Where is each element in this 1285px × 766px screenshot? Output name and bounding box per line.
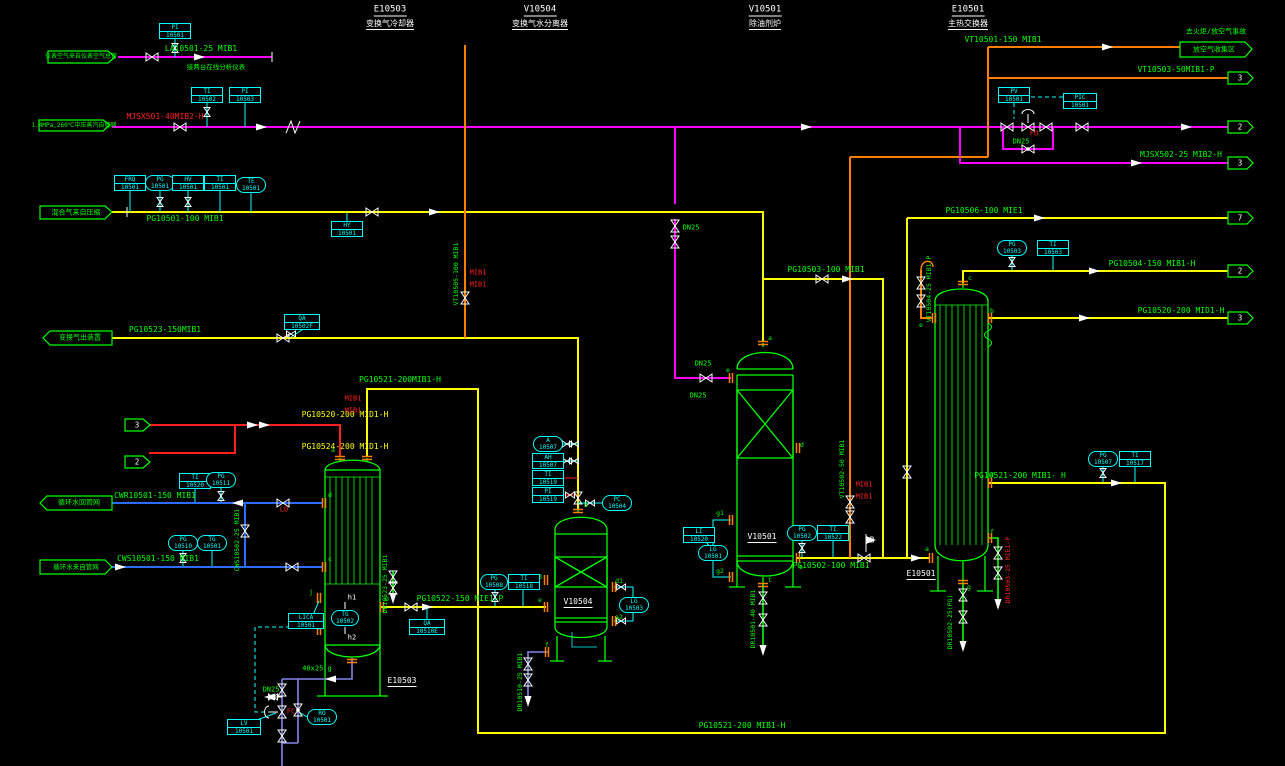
line-note: 接两台在线分析仪表 — [187, 64, 246, 71]
instrument-tag: TG — [198, 536, 226, 543]
instrument-bubble-ro-10501: RO10501 — [307, 709, 337, 725]
offpage-2b: 2 — [1238, 267, 1243, 275]
spec-break: MIB1 — [856, 482, 873, 489]
size-label: DN25 — [263, 687, 280, 694]
instrument-bubble-tg-10501: TG10501 — [197, 535, 227, 551]
line-label: PG10524-200 MID1-H — [302, 443, 389, 451]
line-label: PG10521-200 MIB1-H — [699, 722, 786, 730]
instrument-number: 10502 — [788, 533, 816, 540]
offpage-2-left: 2 — [135, 458, 140, 466]
instrument-number: 10507 — [1089, 459, 1117, 466]
instrument-number: 10511 — [207, 480, 235, 487]
nozzle: a — [768, 335, 772, 342]
instrument-bubble-tg-10502: TG10502 — [331, 610, 359, 626]
line-label: CWS10501-150 MIB1 — [117, 555, 199, 563]
instrument-number: 10503 — [230, 96, 260, 103]
tap-label: h1 — [348, 595, 356, 602]
vessel-v10501 — [729, 343, 801, 587]
spec-break: MIB1 — [345, 408, 362, 415]
line-label: MJSX501-40MIB2-H — [126, 113, 203, 121]
instrument-tag: TI — [1038, 241, 1068, 249]
equip-label-v10504: V10504 — [564, 598, 593, 608]
offpage-2a: 2 — [1238, 123, 1243, 131]
instrument-number: 10522 — [818, 534, 848, 541]
vessel-v10504 — [550, 508, 612, 661]
line-label: LA10501-25 MIB1 — [165, 45, 237, 53]
flag-shift-gas-out: 变换气出装置 — [59, 335, 101, 342]
instrument-signal-dashed — [255, 97, 1063, 712]
instrument-bubble-pg-10511: PG10511 — [206, 472, 236, 488]
instrument-tag: PIC — [1064, 94, 1096, 102]
instrument-bubble-pic-10501: PIC10501 — [1063, 93, 1097, 109]
instrument-bubble-pi-10519: PI10519 — [532, 487, 564, 503]
flag-cw-return: 循环水回管网 — [58, 500, 100, 507]
instrument-number: 10501 — [289, 622, 323, 629]
instrument-tag: PG — [169, 536, 197, 543]
instrument-tag: LI — [684, 528, 714, 536]
header-e10501-sub: 主热交换器 — [948, 20, 988, 30]
line-label: DR10510-25 MIB1 — [517, 653, 524, 712]
instrument-tag: TI — [192, 88, 222, 96]
line-label: PG10521-200MIB1-H — [359, 376, 441, 384]
flag-instrument-air: 仪表空气来自仪表空气总管 — [45, 54, 117, 60]
nozzle: t — [768, 577, 772, 584]
tap-label: h2 — [348, 635, 356, 642]
line-label: DR10523-25 MIB1 — [382, 555, 389, 614]
instrument-taps — [130, 38, 1135, 721]
nozzle: e — [726, 367, 730, 374]
instrument-tag: TI — [1120, 452, 1150, 460]
offpage-3-left: 3 — [135, 421, 140, 429]
instrument-number: 10502 — [192, 96, 222, 103]
header-v10504-sub: 变换气水分离器 — [512, 20, 568, 30]
line-label: PG10506-100 MIE1 — [945, 207, 1022, 215]
instrument-bubble-ti-10522: TI10522 — [817, 525, 849, 541]
nozzle: f — [545, 642, 549, 649]
line-label: PG10522-150 MIE1-P — [417, 595, 504, 603]
line-label: PG10502-100 MIB1 — [792, 562, 869, 570]
spec-break: MIB1 — [345, 396, 362, 403]
instrument-number: 10504 — [603, 503, 631, 510]
instrument-bubble-ti-10519: TI10519 — [532, 470, 564, 486]
nozzle: d — [800, 442, 804, 449]
line-label: VT10503-50MIB1-P — [1137, 66, 1214, 74]
nozzle: b — [584, 502, 588, 509]
instrument-bubble-pc-10504: PC10504 — [602, 495, 632, 511]
offpage-7: 7 — [1238, 214, 1243, 222]
instrument-bubble-a-10507: A10507 — [533, 436, 563, 452]
instrument-tag: QA — [285, 315, 319, 323]
note-flare: 去火炬/放空气事故 — [1186, 29, 1246, 36]
instrument-tag: PI — [230, 88, 260, 96]
nozzle: a — [925, 546, 929, 553]
instrument-bubble-pg-10510: PG10510 — [168, 535, 198, 551]
nozzle: j — [309, 589, 313, 596]
nozzle: d1 — [615, 578, 623, 585]
instrument-tag: LG — [620, 598, 648, 605]
instrument-tag: HY — [332, 222, 362, 230]
size-label: DN25 — [695, 361, 712, 368]
instrument-number: 10501 — [1064, 102, 1096, 109]
nozzle: a — [331, 447, 335, 454]
instrument-tag: FRQ — [115, 176, 145, 184]
vessel-e10501 — [930, 283, 993, 591]
instrument-bubble-hv-10501: HV10501 — [172, 175, 204, 191]
line-label: CWS10502-25 MIB1 — [234, 509, 241, 572]
header-e10503-sub: 变换气冷却器 — [366, 20, 414, 30]
nozzle: e — [538, 597, 542, 604]
instrument-number: 10507 — [533, 462, 563, 469]
line-label: PG10520-200 MID1-H — [1138, 307, 1225, 315]
instrument-number: 10501 — [228, 728, 260, 735]
instrument-bubble-ti-10517: TI10517 — [1119, 451, 1151, 467]
instrument-tag: A — [534, 437, 562, 444]
line-label: VT10501-150 MIB1 — [964, 36, 1041, 44]
instrument-number: 10501 — [205, 184, 235, 191]
line-label: PG10523-150MIB1 — [129, 326, 201, 334]
instrument-number: 10517 — [1120, 460, 1150, 467]
instrument-number: 10508 — [481, 582, 507, 589]
instrument-number: 10501 — [237, 185, 265, 192]
offpage-3c: 3 — [1238, 314, 1243, 322]
instrument-bubble-qa-10502f: QA10502F — [284, 314, 320, 330]
instrument-number: 10501 — [115, 184, 145, 191]
pid-drawing-canvas: E10503变换气冷却器V10504变换气水分离器V10501除油剂炉E1050… — [0, 0, 1285, 766]
instrument-tag: PI — [533, 488, 563, 496]
nozzle: b — [799, 564, 803, 571]
instrument-number: 10501 — [160, 32, 190, 39]
instrument-number: 10510 — [169, 543, 197, 550]
instrument-number: 10519 — [533, 479, 563, 486]
instrument-bubble-li-10520: LI10520 — [683, 527, 715, 543]
instrument-tag: QA — [410, 620, 444, 628]
offpage-3b: 3 — [1238, 159, 1243, 167]
instrument-bubble-pi-10503: PI10503 — [229, 87, 261, 103]
header-v10501: V10501 — [749, 6, 782, 17]
nozzle: g — [967, 584, 971, 591]
instrument-number: 10503 — [998, 248, 1026, 255]
line-label: CWR10501-150 MIB1 — [114, 492, 196, 500]
instrument-tag: PI — [160, 24, 190, 32]
nozzle: d — [328, 492, 332, 499]
flag-vent-header: 放空气收集区 — [1193, 47, 1235, 54]
equip-label-e10501: E10501 — [907, 570, 936, 580]
instrument-tag: HV — [173, 176, 203, 184]
instrument-bubble-lica-10501: LICA10501 — [288, 613, 324, 629]
line-label: MJSX502-25 MIB2-H — [1140, 151, 1222, 159]
header-v10504: V10504 — [524, 6, 557, 17]
spec-break: MIB1 — [470, 282, 487, 289]
instrument-bubble-pg-10503: PG10503 — [997, 240, 1027, 256]
nozzle: e — [919, 322, 923, 329]
instrument-number: 10502F — [285, 323, 319, 330]
header-e10503: E10503 — [374, 6, 407, 17]
valve-action: LO — [280, 507, 288, 514]
instrument-tag: RO — [308, 710, 336, 717]
line-label: VT10505-100 MIB1 — [453, 243, 460, 306]
size-label: DN25 — [683, 225, 700, 232]
instrument-tag: PG — [207, 473, 235, 480]
equip-label-e10503: E10503 — [388, 677, 417, 687]
spec-break: MIB1 — [470, 270, 487, 277]
line-label: PG10501-100 MIB1 — [146, 215, 223, 223]
line-label: DR10503-25 MIE1-P — [1005, 537, 1012, 604]
instrument-tag: LG — [699, 546, 727, 553]
instrument-tag: TI — [509, 575, 539, 583]
flag-mixed-gas: 混合气来自压缩 — [52, 210, 101, 217]
line-label: PG10521-200 MIB1- H — [974, 472, 1066, 480]
instrument-number: 10501 — [173, 184, 203, 191]
instrument-bubble-lv-10501: LV10501 — [227, 719, 261, 735]
line-label: DR10502-25(PG) — [947, 595, 954, 650]
instrument-tag: TG — [332, 611, 358, 618]
equip-label-v10501: V10501 — [748, 533, 777, 543]
instrument-number: 10507 — [534, 444, 562, 451]
instrument-bubble-pv-10501: PV10501 — [998, 87, 1030, 103]
instrument-bubble-pg-10507: PG10507 — [1088, 451, 1118, 467]
instrument-number: 10518 — [509, 583, 539, 590]
nozzle: f — [990, 529, 994, 536]
valves — [146, 44, 1106, 743]
instrument-tag: LICA — [289, 614, 323, 622]
nozzle: a2 — [615, 614, 623, 621]
instrument-bubble-ti-10518: TI10518 — [508, 574, 540, 590]
instrument-number: 10501 — [198, 543, 226, 550]
spec-break: MIB1 — [856, 494, 873, 501]
instrument-tag: PG — [146, 176, 174, 183]
size-label: DN25 — [690, 393, 707, 400]
instrument-tag: PV — [999, 88, 1029, 96]
instrument-number: 10501 — [308, 717, 336, 724]
line-label: PG10503-100 MIB1 — [787, 266, 864, 274]
line-label: DR10501-40 MIB1 — [750, 590, 757, 649]
instrument-bubble-pg-10501: PG10501 — [145, 175, 175, 191]
instrument-bubble-ah-10507: AH10507 — [532, 453, 564, 469]
instrument-tag: TI — [205, 176, 235, 184]
instrument-number: 10503 — [620, 605, 648, 612]
line-label: VT10504-25 MIB1-P — [926, 256, 933, 323]
nozzle: D — [385, 596, 389, 603]
instrument-number: 10510E — [410, 628, 444, 635]
flow-arrows — [115, 44, 1192, 708]
valve-action: FO — [1030, 131, 1038, 138]
instrument-bubble-te-10501: TE10501 — [236, 177, 266, 193]
instrument-tag: PG — [998, 241, 1026, 248]
instrument-tag: TE — [237, 178, 265, 185]
instrument-tag: PC — [603, 496, 631, 503]
tie-point-b: B — [870, 536, 875, 544]
nozzle: g2 — [716, 568, 724, 575]
instrument-bubble-pg-10508: PG10508 — [480, 574, 508, 590]
instrument-bubble-ti-10501: TI10501 — [204, 175, 236, 191]
instrument-tag: AH — [533, 454, 563, 462]
instrument-bubble-hy-10501: HY10501 — [331, 221, 363, 237]
instrument-tag: LV — [228, 720, 260, 728]
instrument-number: 10519 — [533, 496, 563, 503]
instrument-bubble-lg-10503: LG10503 — [619, 597, 649, 613]
line-label: PG10504-150 MIB1-H — [1109, 260, 1196, 268]
instrument-number: 10520 — [684, 536, 714, 543]
instrument-bubble-frq-10501: FRQ10501 — [114, 175, 146, 191]
nozzle: d — [990, 472, 994, 479]
size-label: 40x25 g — [302, 666, 332, 673]
nozzle: b — [990, 308, 994, 315]
line-label: VT10502-50 MIB1 — [839, 440, 846, 499]
instrument-tag: PG — [1089, 452, 1117, 459]
header-e10501: E10501 — [952, 6, 985, 17]
instrument-bubble-qa-10510e: QA10510E — [409, 619, 445, 635]
instrument-bubble-ti-10503: TI10503 — [1037, 240, 1069, 256]
offpage-3a: 3 — [1238, 74, 1243, 82]
flag-mp-steam: 1.4MPa,260℃中压蒸汽自管网 — [32, 123, 117, 129]
instrument-number: 10501 — [999, 96, 1029, 103]
instrument-bubble-ti-10502: TI10502 — [191, 87, 223, 103]
size-label: DN25 — [1013, 139, 1030, 146]
nozzle: c — [968, 275, 972, 282]
instrument-tag: PG — [788, 526, 816, 533]
instrument-number: 10501 — [332, 230, 362, 237]
instrument-tag: TI — [818, 526, 848, 534]
instrument-tag: PG — [481, 575, 507, 582]
instrument-bubble-pi-10501: PI10501 — [159, 23, 191, 39]
instrument-number: 10501 — [699, 553, 727, 560]
valve-action: FC — [287, 709, 295, 716]
instrument-tag: TI — [533, 471, 563, 479]
instrument-bubble-lg-10501: LG10501 — [698, 545, 728, 561]
nozzle: c — [328, 556, 332, 563]
instrument-number: 10502 — [332, 618, 358, 625]
flag-cw-supply: 循环水来自管网 — [53, 564, 99, 571]
instrument-bubble-pg-10502: PG10502 — [787, 525, 817, 541]
instrument-number: 10501 — [146, 183, 174, 190]
nozzle: g1 — [716, 510, 724, 517]
header-v10501-sub: 除油剂炉 — [749, 20, 781, 30]
instrument-number: 10503 — [1038, 249, 1068, 256]
